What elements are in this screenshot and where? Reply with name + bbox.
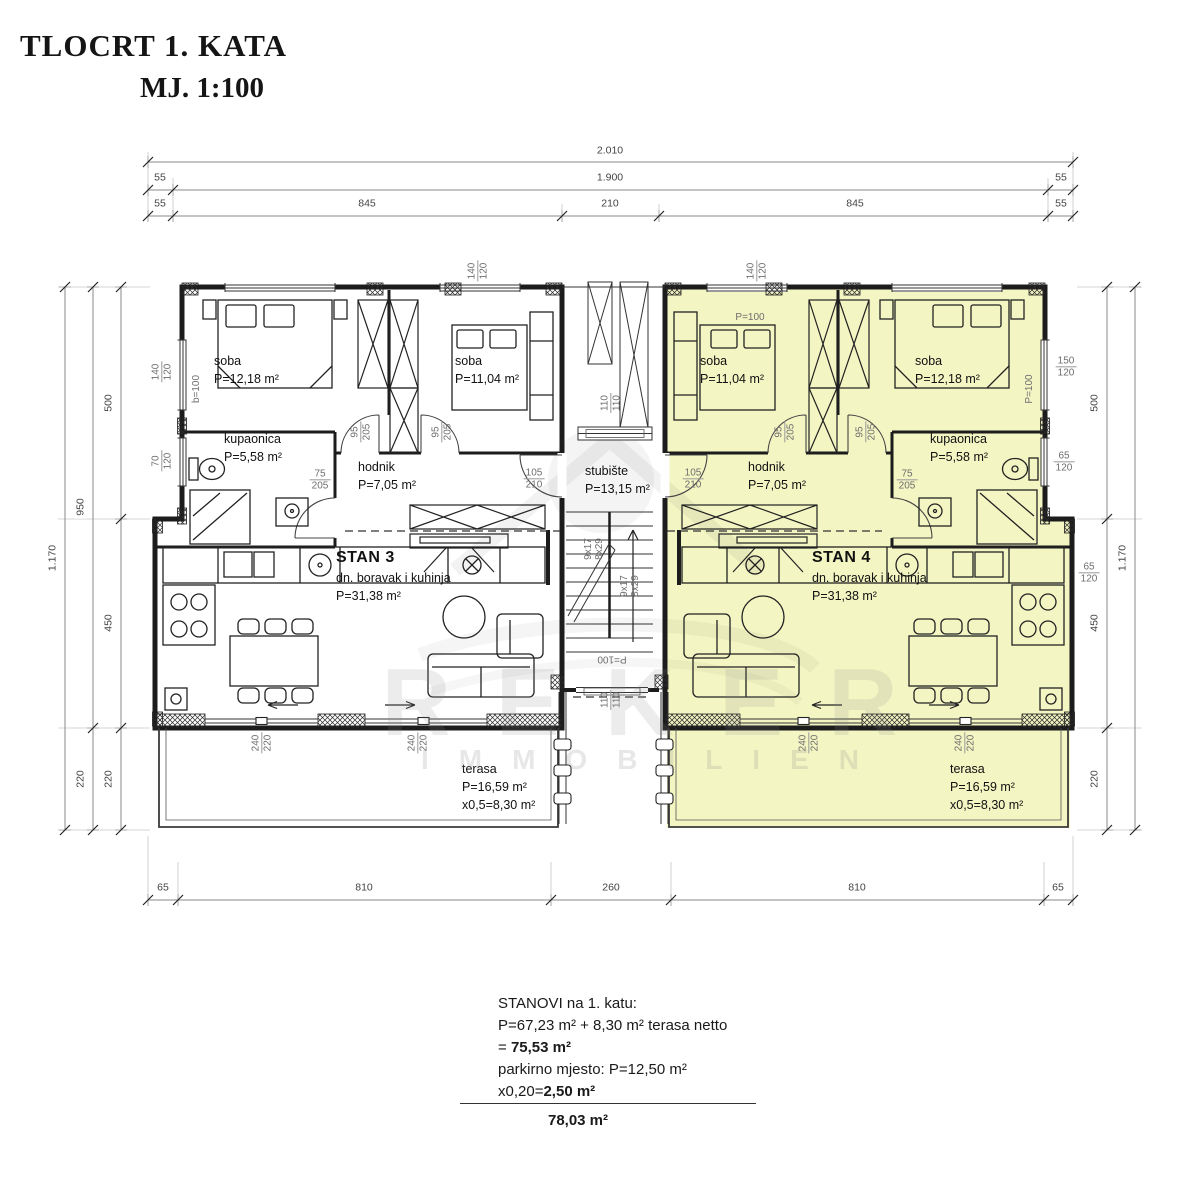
room-area: P=5,58 m² [930,448,988,466]
size-top: 95 [773,422,785,443]
room-label-hodnik: hodnik P=7,05 m² [358,458,416,494]
dim-label: 65 [154,881,172,894]
size-bottom: 120 [1054,463,1075,474]
room-area: P=5,58 m² [224,448,282,466]
door-size-label: 75205 [310,468,331,491]
dim-label: 500 [102,391,115,415]
room-area: P=11,04 m² [455,370,519,388]
window-size-label: 65120 [1079,561,1100,584]
room-area: P=13,15 m² [585,480,650,498]
dim-label: 55 [1052,197,1070,210]
size-top: 140 [745,261,757,282]
apartment-label-stan3: STAN 3 dn. boravak i kuhinja P=31,38 m² [336,546,451,605]
room-area: P=11,04 m² [700,370,764,388]
room-name: kupaonica [224,430,282,448]
size-bottom: 120 [1079,574,1100,585]
window-size-label: 140120 [745,261,768,282]
size-top: 70 [150,451,162,472]
dim-label: 950 [74,495,87,519]
stair-flight: 9x17 [619,575,630,597]
dim-label: 55 [151,171,169,184]
size-bottom: 120 [163,362,174,383]
window-size-label: 140120 [466,261,489,282]
size-bottom: 110 [612,393,623,413]
stair-step-label: 9x178x29 [619,575,641,597]
size-top: 75 [897,468,918,480]
apartment-name: STAN 4 [812,546,927,569]
dim-label: 845 [355,197,379,210]
size-top: 140 [150,362,162,383]
apartment-area: P=31,38 m² [812,587,927,605]
watermark-text: REKER [381,648,942,758]
stair-step-label: 9x178x29 [583,538,605,560]
page-title: TLOCRT 1. KATA [20,28,287,64]
apartment-area: P=31,38 m² [336,587,451,605]
size-bottom: 220 [263,733,274,754]
size-top: 75 [310,468,331,480]
room-label-soba: soba P=11,04 m² [700,352,764,388]
dim-label: 65 [1049,881,1067,894]
stair-riser: 8x29 [630,575,641,597]
parapet-label: P=100 [735,312,764,325]
dim-label: 450 [1088,611,1101,635]
door-size-label: 240220 [953,733,976,754]
page-scale: MJ. 1:100 [140,72,264,105]
size-bottom: 205 [443,422,454,443]
size-top: 240 [953,733,965,754]
size-bottom: 120 [758,261,769,282]
window-size-label: 65120 [1054,450,1075,473]
parapet-label: b=100 [191,375,204,403]
room-label-soba: soba P=11,04 m² [455,352,519,388]
dim-left-total: 1.170 [46,542,59,574]
dim-label: 260 [599,881,623,894]
size-bottom: 210 [524,480,545,491]
room-area: P=16,59 m² [950,778,1023,796]
size-bottom: 120 [479,261,490,282]
room-area: P=12,18 m² [915,370,980,388]
size-bottom: 205 [362,422,373,443]
room-area: P=16,59 m² [462,778,535,796]
room-area: P=7,05 m² [358,476,416,494]
dim-label: 845 [843,197,867,210]
door-size-label: 240220 [250,733,273,754]
stair-riser: 8x29 [594,538,605,560]
size-top: 105 [683,467,704,479]
room-label-stubiste: stubište P=13,15 m² [585,462,650,498]
dim-label: 55 [1052,171,1070,184]
size-bottom: 120 [1056,368,1077,379]
door-size-label: 95205 [854,422,877,443]
apartment-type: dn. boravak i kuhinja [336,569,451,587]
dim-label: 220 [1088,767,1101,791]
window-size-label: 150120 [1056,355,1077,378]
door-size-label: 95205 [773,422,796,443]
size-bottom: 120 [163,451,174,472]
size-top: 95 [430,422,442,443]
summary-line: parkirno mjesto: P=12,50 m² [498,1059,727,1081]
window-size-label: 110110 [599,393,622,413]
door-size-label: 105210 [524,467,545,490]
summary-line: = 75,53 m² [498,1037,727,1059]
room-label-kupaonica: kupaonica P=5,58 m² [930,430,988,466]
summary-line: STANOVI na 1. katu: [498,993,727,1015]
size-bottom: 205 [867,422,878,443]
door-size-label: 105210 [683,467,704,490]
size-top: 95 [854,422,866,443]
size-top: 95 [349,422,361,443]
size-bottom: 205 [897,481,918,492]
summary-line: x0,20=2,50 m² [498,1081,727,1103]
size-top: 150 [1056,355,1077,367]
room-name: soba [915,352,980,370]
apartment-type: dn. boravak i kuhinja [812,569,927,587]
room-name: soba [700,352,764,370]
summary-line: P=67,23 m² + 8,30 m² terasa netto [498,1015,727,1037]
size-top: 140 [466,261,478,282]
window-size-label: 140120 [150,362,173,383]
dim-label: 450 [102,611,115,635]
watermark-subtext: IMMOBILIEN [421,744,889,776]
room-area-calc: x0,5=8,30 m² [950,796,1023,814]
size-top: 65 [1079,561,1100,573]
floorplan-page: TLOCRT 1. KATA MJ. 1:100 2.010 55 1.900 … [0,0,1200,1200]
dim-label: 210 [598,197,622,210]
size-bottom: 220 [966,733,977,754]
dim-label: 810 [845,881,869,894]
apartment-label-stan4: STAN 4 dn. boravak i kuhinja P=31,38 m² [812,546,927,605]
window-size-label: 70120 [150,451,173,472]
room-name: hodnik [748,458,806,476]
dim-label: 810 [352,881,376,894]
room-name: soba [455,352,519,370]
room-name: kupaonica [930,430,988,448]
room-area-calc: x0,5=8,30 m² [462,796,535,814]
dim-label: 55 [151,197,169,210]
area-summary: STANOVI na 1. katu: P=67,23 m² + 8,30 m²… [498,993,727,1103]
dim-top-total: 2.010 [594,144,626,157]
room-label-terasa: terasa P=16,59 m² x0,5=8,30 m² [950,760,1023,814]
size-bottom: 210 [683,480,704,491]
stair-flight: 9x17 [583,538,594,560]
room-name: soba [214,352,279,370]
room-area: P=7,05 m² [748,476,806,494]
room-label-soba: soba P=12,18 m² [915,352,980,388]
door-size-label: 95205 [430,422,453,443]
size-bottom: 205 [310,481,331,492]
apartment-name: STAN 3 [336,546,451,569]
dim-label: 220 [102,767,115,791]
dim-label: 1.900 [594,171,626,184]
size-bottom: 205 [786,422,797,443]
size-top: 110 [599,393,611,413]
size-top: 65 [1054,450,1075,462]
dim-right-total: 1.170 [1116,542,1129,574]
room-name: hodnik [358,458,416,476]
room-name: terasa [950,760,1023,778]
dim-label: 220 [74,767,87,791]
room-label-soba: soba P=12,18 m² [214,352,279,388]
size-top: 105 [524,467,545,479]
parapet-label: P=100 [1024,374,1037,403]
room-label-kupaonica: kupaonica P=5,58 m² [224,430,282,466]
summary-divider [460,1103,756,1104]
door-size-label: 95205 [349,422,372,443]
room-area: P=12,18 m² [214,370,279,388]
size-top: 240 [250,733,262,754]
door-size-label: 75205 [897,468,918,491]
room-label-hodnik: hodnik P=7,05 m² [748,458,806,494]
dim-label: 500 [1088,391,1101,415]
summary-total: 78,03 m² [548,1112,608,1129]
room-name: stubište [585,462,650,480]
